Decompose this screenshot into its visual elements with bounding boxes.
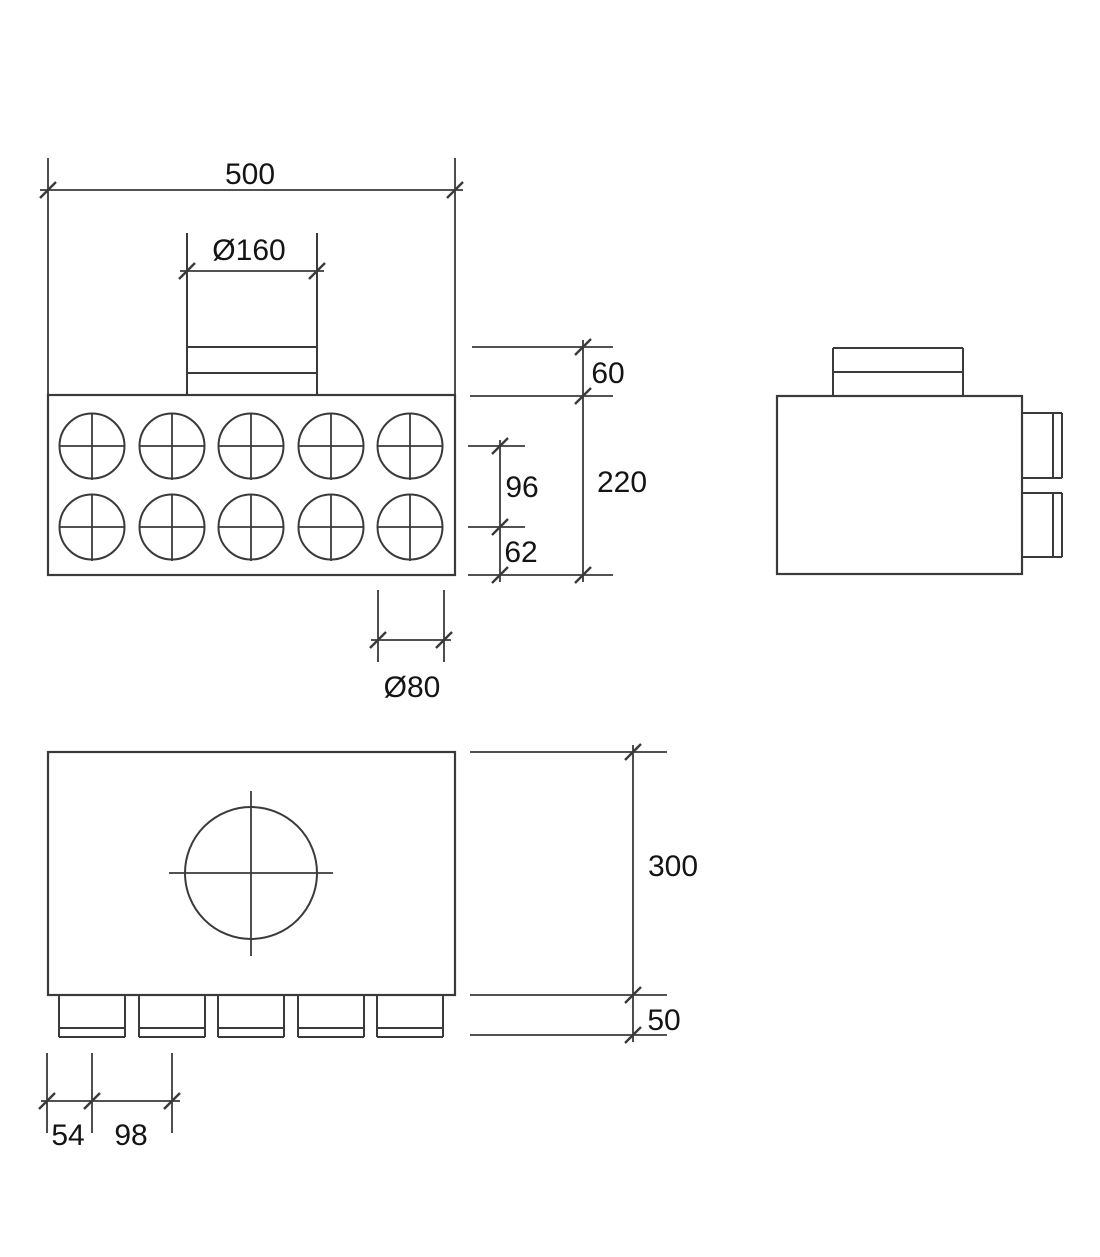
stub: [377, 995, 443, 1037]
side-stub-upper: [1022, 413, 1062, 478]
technical-drawing: 500 Ø160 60 220 96 62: [0, 0, 1100, 1257]
stub: [139, 995, 205, 1037]
dim-spigot-diameter: Ø160: [179, 234, 325, 279]
dim-pitch-label: 98: [114, 1119, 147, 1152]
dim-bottom-offset-label: 62: [504, 536, 537, 569]
side-view: [777, 348, 1062, 574]
dim-stub-length-label: 50: [647, 1004, 680, 1037]
dimensions: 500 Ø160 60 220 96 62: [39, 158, 698, 1152]
port: [377, 494, 443, 561]
dim-collar-height-label: 60: [591, 357, 624, 390]
port: [218, 413, 284, 480]
dim-first-offset-label: 54: [51, 1119, 84, 1152]
bottom-spigot-hole: [169, 791, 333, 956]
dim-port-diameter-label: Ø80: [384, 671, 441, 704]
front-view: [48, 233, 455, 575]
port: [377, 413, 443, 480]
stub: [59, 995, 125, 1037]
port: [59, 494, 125, 561]
dim-stub-pitch: 54 98: [39, 1053, 180, 1152]
port: [139, 413, 205, 480]
drawing-canvas: 500 Ø160 60 220 96 62: [0, 0, 1100, 1257]
stub: [218, 995, 284, 1037]
dim-row-spacing-label: 96: [505, 471, 538, 504]
dim-depth-and-stub-length: 300 50: [470, 744, 698, 1043]
port: [139, 494, 205, 561]
port: [298, 413, 364, 480]
port: [59, 413, 125, 480]
stub: [298, 995, 364, 1037]
side-top-spigot: [833, 348, 963, 396]
side-body-outline: [777, 396, 1022, 574]
port: [218, 494, 284, 561]
dim-spigot-diameter-label: Ø160: [212, 234, 285, 267]
dim-port-diameter: Ø80: [370, 590, 452, 704]
bottom-view: [48, 752, 455, 1037]
port: [298, 494, 364, 561]
side-stub-lower: [1022, 493, 1062, 557]
dim-collar-and-body-height: 60 220: [468, 339, 647, 583]
dim-overall-width-label: 500: [225, 158, 275, 191]
dim-body-height-label: 220: [597, 466, 647, 499]
dim-port-rows: 96 62: [468, 438, 539, 583]
front-ports-grid: [59, 413, 443, 561]
bottom-stubs: [59, 995, 443, 1037]
dim-body-depth-label: 300: [648, 850, 698, 883]
dim-overall-width: 500: [40, 158, 463, 394]
